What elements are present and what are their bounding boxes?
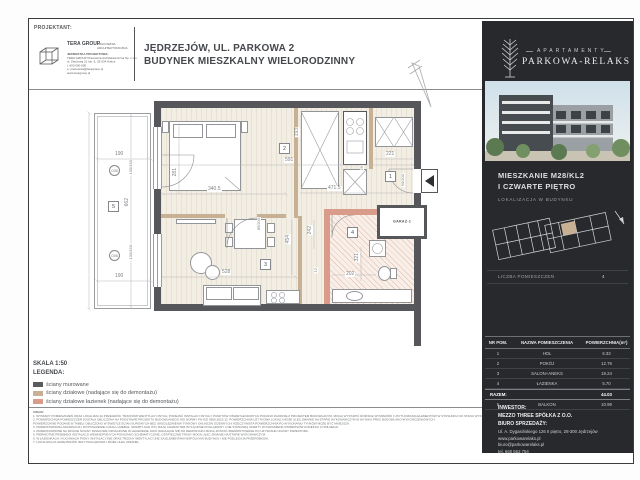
entrance-arrow-icon xyxy=(425,175,434,187)
table-row-cell: POKÓJ xyxy=(511,359,583,369)
legend-swatch-lazienek xyxy=(33,399,43,404)
chair xyxy=(267,237,275,247)
window-pokoj xyxy=(153,127,162,189)
window-salon xyxy=(153,234,162,287)
legend-swatch-dzialowe xyxy=(33,391,43,396)
partition-pokoj-salon-right xyxy=(257,214,286,218)
door-size-label: 85/200 xyxy=(257,217,261,231)
table-total-label: RAZEM: xyxy=(485,389,583,400)
investor-company: MEZZO THREE SPÓŁKA Z O.O. xyxy=(498,413,572,419)
bathroom-wall-left xyxy=(324,209,330,304)
dim-label: 190 xyxy=(114,274,124,279)
brand-kicker: APARTAMENTY xyxy=(537,48,607,54)
window-size-label: 100/150 xyxy=(129,244,133,260)
sales-office-www[interactable]: www.parkowarelaks.pl xyxy=(498,436,541,441)
partition-pokoj-salon-left xyxy=(161,214,225,218)
hall-wardrobe xyxy=(375,117,413,147)
room-label-salon: 3 xyxy=(260,259,271,270)
dim-label: 25 xyxy=(360,165,364,171)
table-header-area: POWIERZCHNIA(m²) xyxy=(583,336,630,349)
panel-hairline-2 xyxy=(487,283,628,284)
sales-office-label: BIURO SPRZEDAŻY: xyxy=(498,421,547,427)
dim-label: 281 xyxy=(173,167,178,177)
dim-label: 321 xyxy=(355,252,360,262)
tera-cube-logo-icon xyxy=(37,45,63,69)
table-row-cell: 2 xyxy=(485,359,511,369)
dim-label: 591 xyxy=(284,158,294,163)
nightstand xyxy=(162,121,169,133)
designer-tagline: PRACOWNIAARCHITEKTONICZNA xyxy=(97,43,127,51)
investor-label: INWESTOR: xyxy=(498,405,527,411)
dining-table xyxy=(234,219,266,249)
dim-label: 340.5 xyxy=(207,187,222,192)
window-marker: O08 xyxy=(109,250,120,261)
toilet-tank xyxy=(390,268,397,279)
room-label-lazienka: 4 xyxy=(347,227,358,238)
floorplan-sheet-page: PROJEKTANT: TERA GROUP PRACOWNIAARCHITEK… xyxy=(0,0,640,480)
sales-office-email[interactable]: biuro@parkowarelaks.pl xyxy=(498,442,544,447)
brand-name: PARKOWA-RELAKS xyxy=(522,57,631,67)
dim-label: 190 xyxy=(114,152,124,157)
legend-item: ściany murowane xyxy=(33,382,179,388)
rooms-count-label: LICZBA POMIESZCZEŃ xyxy=(498,274,554,279)
pouf xyxy=(205,265,220,280)
table-row-cell: HOL xyxy=(511,349,583,359)
washing-machine xyxy=(369,240,386,257)
kitchen-tall-unit xyxy=(343,111,367,165)
notes-block: UWAGI: 1. WYMIARY POMIESZCZEŃ ORAZ LOKAL… xyxy=(33,411,481,445)
dim-label: 242 xyxy=(308,225,313,235)
right-panel: APARTAMENTY PARKOWA-RELAKS MI xyxy=(482,21,633,453)
north-arrow-icon xyxy=(408,60,431,107)
room-label-balkon: 5 xyxy=(108,201,119,212)
designer-address: JEDNOSTKA PROJEKTOWA: TERA GROUP Pracown… xyxy=(67,53,138,76)
project-title-line1: JĘDRZEJÓW, UL. PARKOWA 2 xyxy=(144,43,294,54)
table-header-nr: NR POM. xyxy=(485,336,511,349)
sheet-border: PROJEKTANT: TERA GROUP PRACOWNIAARCHITEK… xyxy=(28,18,634,464)
table-row-cell: 1 xyxy=(485,349,511,359)
dim-label: 202 xyxy=(345,272,355,277)
wall-top xyxy=(154,101,421,108)
tv-cabinet xyxy=(176,219,216,224)
header-rule xyxy=(29,89,482,90)
room-label-pokoj: 2 xyxy=(279,143,290,154)
chair xyxy=(267,223,275,233)
table-row-cell: 12.76 xyxy=(583,359,630,369)
notes-rule xyxy=(29,407,482,408)
legend-title: LEGENDA: xyxy=(33,370,64,376)
chair xyxy=(225,223,233,233)
projektant-label: PROJEKTANT: xyxy=(34,25,72,31)
table-row-cell: 4 xyxy=(485,379,511,389)
location-miniplan xyxy=(485,205,630,267)
partition-pokoj-kitchen xyxy=(294,108,298,218)
garage-shaft-box: GARAŻ-1 xyxy=(377,205,427,239)
scale-label: SKALA 1:50 xyxy=(33,361,67,367)
door-size-label: 90/200 xyxy=(401,173,405,187)
room-label-hol: 1 xyxy=(385,171,396,182)
dim-label: 471.5 xyxy=(327,186,342,191)
header-divider xyxy=(134,27,135,81)
kitchen-counter xyxy=(266,290,300,304)
unit-location-label: LOKALIZACJA W BUDYNKU xyxy=(498,197,573,202)
table-row-cell: ŁAZIENKA xyxy=(511,379,583,389)
panel-hairline-1 xyxy=(487,270,628,271)
sofa-cushion xyxy=(206,287,232,300)
chair xyxy=(225,237,233,247)
sink xyxy=(346,291,363,301)
table-balkon-value: 10.99 xyxy=(583,400,630,410)
dim-label: 662 xyxy=(125,197,130,207)
sales-office-address: Ul. A. Dygasińskiego 126 II piętro, 28-3… xyxy=(498,429,598,434)
designer-logo-name: TERA GROUP xyxy=(67,42,100,48)
project-title-line2: BUDYNEK MIESZKALNY WIELORODZINNY xyxy=(144,56,355,67)
dim-label: 528 xyxy=(221,270,231,275)
wall-right-stub xyxy=(414,311,421,346)
entrance-door-marker xyxy=(421,169,438,193)
table-row-cell: 19.24 xyxy=(583,369,630,379)
dim-label: 12 xyxy=(314,267,318,273)
wall-bottom xyxy=(154,304,421,311)
brand-rule-left xyxy=(526,51,533,52)
legend-item: ściany działowe łazienek (nadające się d… xyxy=(33,399,179,405)
window-size-label: 100/150 xyxy=(129,159,133,175)
window-marker: O08 xyxy=(109,165,120,176)
bed-pillow xyxy=(173,124,203,138)
tree-logo-icon xyxy=(499,35,521,79)
table-row-cell: SALON+ANEKS xyxy=(511,369,583,379)
legend-swatch-murowane xyxy=(33,382,43,387)
bed-pillow xyxy=(206,124,236,138)
garage-shaft-label: GARAŻ-1 xyxy=(393,220,411,224)
bathroom-wall-top xyxy=(324,209,377,215)
rooms-count-value: 4 xyxy=(602,274,605,279)
dim-label: 193 xyxy=(295,127,300,137)
wardrobe xyxy=(301,111,339,189)
bathroom-counter xyxy=(332,289,412,303)
table-row-cell: 3 xyxy=(485,369,511,379)
kitchen-cabinet xyxy=(343,169,367,195)
table-header-name: NAZWA POMIESZCZENIA xyxy=(511,336,583,349)
brand-rule-right xyxy=(604,51,611,52)
sofa-cushion xyxy=(233,287,259,300)
table-row-cell: 5.70 xyxy=(583,379,630,389)
areas-table: NR POM. NAZWA POMIESZCZENIA POWIERZCHNIA… xyxy=(485,336,630,410)
unit-floor: I CZWARTE PIĘTRO xyxy=(498,182,576,191)
table-total-value: 44.03 xyxy=(583,389,630,400)
partition-kitchen-hol xyxy=(369,108,373,169)
nightstand xyxy=(241,121,248,133)
legend-item: ściany działowe (nadające się do demonta… xyxy=(33,390,179,396)
dim-label: 454 xyxy=(286,234,291,244)
unit-name: MIESZKANIE M28/KL2 xyxy=(498,171,584,180)
legend-list: ściany murowane ściany działowe (nadając… xyxy=(33,379,179,405)
dim-label: 221 xyxy=(385,152,395,157)
building-photo xyxy=(485,81,630,161)
table-row-cell: 6.33 xyxy=(583,349,630,359)
sales-office-phone: tel. 660 562 754 xyxy=(498,449,529,454)
